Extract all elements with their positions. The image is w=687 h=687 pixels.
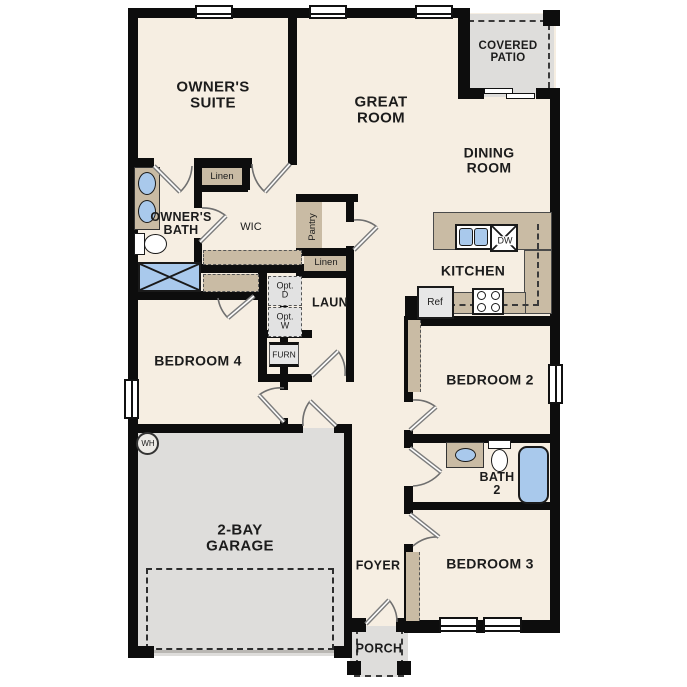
wall: [131, 291, 258, 300]
garage-threshold-line: [152, 650, 336, 653]
wall: [128, 417, 138, 658]
room-label-kitchen: KITCHEN: [441, 264, 505, 279]
room-label-owners-bath: OWNER'S BATH: [150, 211, 211, 237]
hall-shelf: [203, 274, 259, 292]
sliding-door-panel: [506, 93, 535, 99]
shower: [138, 262, 201, 292]
closet-label-linen-upper: Linen: [210, 172, 233, 182]
appliance-label-wh: WH: [141, 440, 154, 448]
wall: [128, 646, 154, 658]
window: [195, 5, 233, 19]
room-label-bath2: BATH 2: [480, 471, 515, 497]
appliance-label-opt-washer: Opt. W: [276, 313, 293, 332]
wall: [520, 620, 560, 633]
wall: [194, 184, 248, 192]
appliance-label-furnace: FURN: [272, 351, 296, 360]
patio-dashed-edge-top: [468, 20, 546, 22]
wall: [404, 486, 413, 514]
toilet-bowl: [491, 449, 508, 472]
appliance-label-ref: Ref: [427, 298, 443, 309]
wall: [458, 8, 470, 98]
wic-shelf: [203, 250, 302, 265]
sink-basin: [459, 228, 473, 246]
closet-label-linen-lower: Linen: [314, 258, 337, 268]
burner: [491, 291, 500, 300]
wall: [404, 430, 413, 448]
window: [548, 364, 563, 404]
bathtub: [518, 446, 549, 504]
wall: [194, 264, 306, 273]
room-label-dining-room: DINING ROOM: [464, 145, 515, 174]
burner: [491, 303, 500, 312]
wall: [133, 424, 303, 433]
wall: [288, 14, 297, 165]
room-label-bedroom2: BEDROOM 2: [446, 373, 534, 388]
window: [415, 5, 453, 19]
window: [309, 5, 347, 19]
porch-post: [397, 661, 411, 675]
room-label-owners-suite: OWNER'S SUITE: [176, 79, 249, 111]
porch-post: [347, 661, 361, 675]
closet-label-pantry: Pantry: [308, 213, 318, 240]
appliance-label-dw: DW: [497, 236, 514, 245]
wall: [296, 270, 354, 278]
burner: [477, 303, 486, 312]
sink-basin: [455, 448, 476, 462]
window: [483, 617, 522, 632]
room-label-foyer: FOYER: [356, 559, 401, 572]
wall: [413, 434, 556, 443]
wall: [296, 248, 354, 256]
toilet-tank: [488, 440, 511, 449]
room-label-laundry: LAUN: [312, 296, 348, 309]
window: [124, 379, 139, 419]
room-label-great-room: GREAT ROOM: [355, 94, 408, 126]
wall: [458, 88, 484, 99]
wall: [258, 374, 312, 382]
wall: [346, 194, 354, 222]
room-label-porch: PORCH: [356, 642, 403, 655]
window: [439, 617, 478, 632]
room-label-garage: 2-BAY GARAGE: [206, 522, 274, 554]
burner: [477, 291, 486, 300]
room-label-bedroom4: BEDROOM 4: [154, 354, 242, 369]
wall: [543, 10, 560, 26]
bedroom2-closet: [408, 320, 421, 392]
room-label-covered-patio: COVERED PATIO: [479, 40, 538, 64]
floor-plan: OWNER'S SUITE GREAT ROOM COVERED PATIO D…: [0, 0, 687, 687]
patio-dashed-edge-right: [548, 24, 550, 88]
room-label-bedroom3: BEDROOM 3: [446, 557, 534, 572]
wall: [344, 424, 352, 658]
sink-basin: [474, 228, 488, 246]
room-label-wic: WIC: [240, 222, 261, 234]
sink-basin: [138, 172, 156, 195]
garage-door-dashed-outline: [146, 568, 334, 650]
bedroom3-closet: [406, 552, 420, 621]
appliance-label-opt-dryer: Opt. D: [276, 282, 293, 301]
